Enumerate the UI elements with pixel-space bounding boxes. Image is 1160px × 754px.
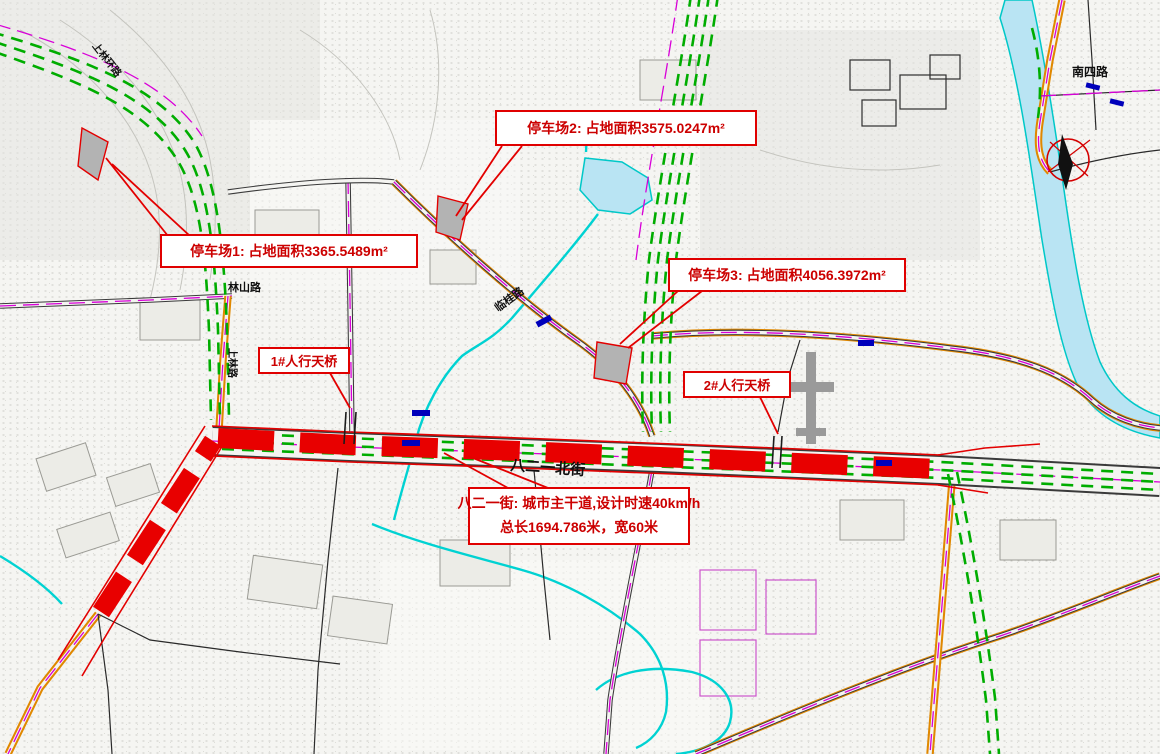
terrain-patches xyxy=(0,0,980,750)
callout-bridge1: 1#人行天桥 xyxy=(258,347,350,374)
callout-parking3: 停车场3: 占地面积4056.3972m² xyxy=(668,258,906,292)
street-label-shanglin: 上林路 xyxy=(226,348,239,379)
callout-bridge2: 2#人行天桥 xyxy=(683,371,791,398)
callout-parking1: 停车场1: 占地面积3365.5489m² xyxy=(160,234,418,268)
callout-parking2: 停车场2: 占地面积3575.0247m² xyxy=(495,110,757,146)
street-label-linshan: 林山路 xyxy=(228,280,262,294)
stream-left xyxy=(0,556,62,604)
lake xyxy=(580,158,652,214)
airstrip-symbol xyxy=(788,352,834,444)
road-info-line2: 总长1694.786米，宽60米 xyxy=(500,516,658,540)
callout-road-info: 八二一街: 城市主干道,设计时速40km/h 总长1694.786米，宽60米 xyxy=(468,487,690,545)
map-canvas[interactable]: 八二一北街 林山路 南四路 上林路 临桂路 上林环路 停车场2: 占地面积357… xyxy=(0,0,1160,754)
parking-area-3 xyxy=(594,342,632,384)
road-info-line1: 八二一街: 城市主干道,设计时速40km/h xyxy=(458,492,701,516)
street-label-nansi: 南四路 xyxy=(1072,64,1109,79)
